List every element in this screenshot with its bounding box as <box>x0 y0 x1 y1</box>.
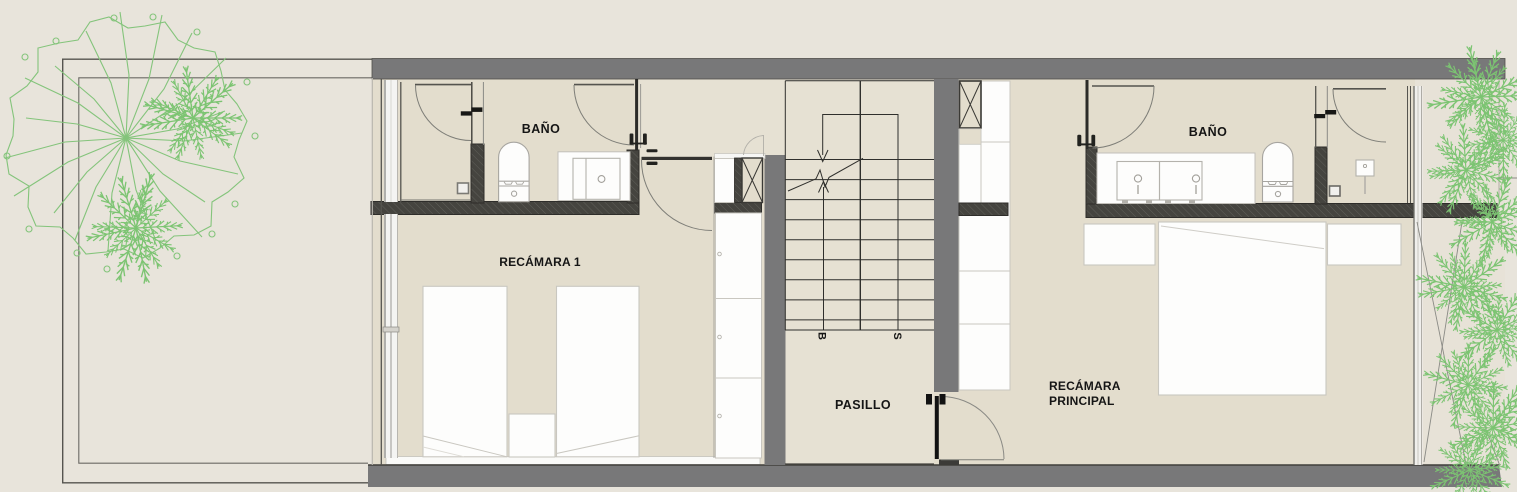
svg-text:S: S <box>891 332 903 339</box>
svg-text:RECÁMARA: RECÁMARA <box>1049 378 1121 393</box>
svg-text:PASILLO: PASILLO <box>835 398 891 412</box>
svg-text:BAÑO: BAÑO <box>522 121 560 136</box>
svg-text:BAÑO: BAÑO <box>1189 124 1227 139</box>
svg-text:PRINCIPAL: PRINCIPAL <box>1049 394 1115 408</box>
svg-text:RECÁMARA 1: RECÁMARA 1 <box>499 254 581 269</box>
svg-text:B: B <box>816 332 828 340</box>
